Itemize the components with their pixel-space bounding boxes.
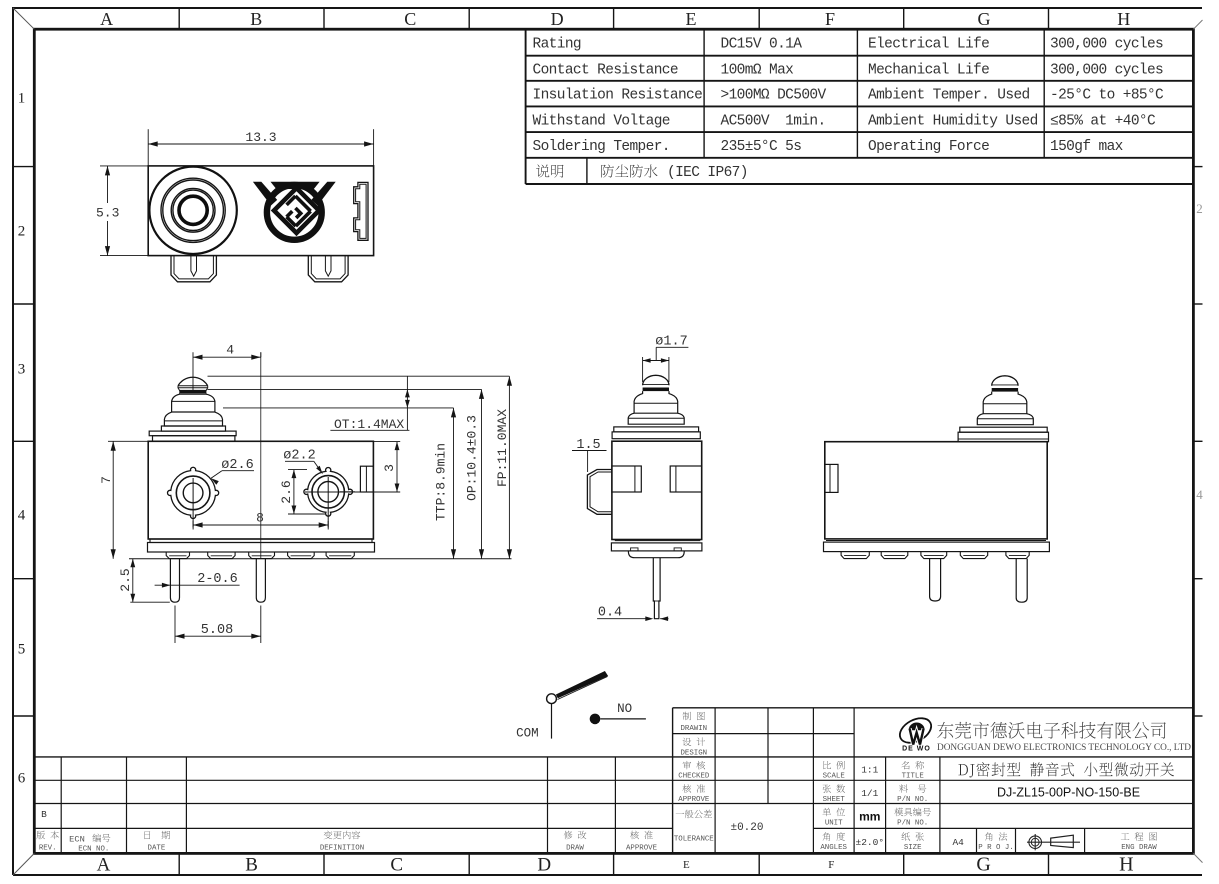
svg-text:2: 2 [1196, 201, 1203, 216]
svg-text:C: C [390, 855, 403, 876]
svg-text:APPROVE: APPROVE [678, 796, 710, 804]
svg-text:H: H [1119, 854, 1133, 876]
svg-text:2.5: 2.5 [118, 568, 133, 591]
svg-text:13.3: 13.3 [245, 130, 276, 145]
svg-text:SHEET: SHEET [823, 796, 846, 804]
svg-text:D: D [537, 855, 551, 876]
svg-text:D: D [551, 9, 564, 29]
svg-text:B: B [245, 855, 258, 876]
svg-text:A: A [100, 9, 113, 29]
svg-text:ECN: ECN [69, 835, 85, 845]
svg-text:TITLE: TITLE [902, 773, 925, 781]
svg-text:P/N NO.: P/N NO. [897, 819, 928, 827]
svg-text:±0.20: ±0.20 [730, 822, 763, 834]
svg-text:100mΩ Max: 100mΩ Max [721, 62, 795, 78]
svg-text:DATE: DATE [148, 845, 166, 853]
svg-text:ENG DRAW: ENG DRAW [1121, 844, 1157, 852]
svg-text:COM: COM [516, 726, 539, 740]
svg-text:DRAW: DRAW [566, 845, 584, 853]
svg-text:Rating: Rating [533, 37, 582, 53]
svg-text:≤85% at +40°C: ≤85% at +40°C [1050, 113, 1156, 129]
svg-text:P/N NO.: P/N NO. [897, 796, 928, 804]
svg-text:OP:10.4±0.3: OP:10.4±0.3 [464, 415, 479, 501]
svg-text:FP:11.0MAX: FP:11.0MAX [495, 409, 510, 487]
svg-text:DE WO: DE WO [902, 746, 931, 753]
svg-text:DESIGN: DESIGN [680, 749, 707, 757]
svg-text:A: A [97, 855, 111, 876]
svg-text:Soldering Temper.: Soldering Temper. [533, 139, 670, 155]
svg-text:B: B [250, 9, 262, 29]
svg-text:OT:1.4MAX: OT:1.4MAX [334, 417, 404, 432]
svg-text:E: E [683, 859, 690, 871]
svg-text:1/1: 1/1 [861, 788, 878, 799]
svg-text:5.08: 5.08 [201, 623, 233, 638]
svg-text:±2.0°: ±2.0° [856, 837, 885, 848]
svg-text:Ambient Humidity Used: Ambient Humidity Used [868, 113, 1038, 129]
svg-text:DC15V 0.1A: DC15V 0.1A [721, 37, 803, 53]
svg-text:-25°C to +85°C: -25°C to +85°C [1050, 88, 1164, 104]
svg-text:300,000 cycles: 300,000 cycles [1050, 37, 1163, 53]
svg-text:G: G [978, 9, 991, 29]
svg-text:(IEC IP67): (IEC IP67) [667, 165, 748, 181]
svg-text:5.3: 5.3 [96, 206, 119, 221]
svg-text:3: 3 [18, 362, 26, 378]
svg-text:5: 5 [18, 642, 26, 658]
svg-text:DJ-ZL15-00P-NO-150-BE: DJ-ZL15-00P-NO-150-BE [997, 786, 1140, 800]
svg-text:H: H [1117, 9, 1130, 29]
svg-text:F: F [828, 859, 834, 871]
svg-text:4: 4 [226, 343, 234, 358]
svg-text:A4: A4 [952, 837, 964, 848]
svg-text:TOLERANCE: TOLERANCE [674, 836, 714, 844]
svg-text:300,000 cycles: 300,000 cycles [1050, 62, 1163, 78]
svg-text:NO: NO [617, 702, 632, 716]
svg-text:APPROVE: APPROVE [626, 845, 658, 853]
svg-text:DRAWIN: DRAWIN [680, 725, 707, 733]
svg-text:TTP:8.9min: TTP:8.9min [434, 443, 449, 521]
svg-text:AC500V 1min.: AC500V 1min. [721, 113, 826, 129]
svg-text:>100MΩ DC500V: >100MΩ DC500V [721, 88, 827, 104]
svg-text:G: G [976, 854, 990, 876]
svg-text:1:1: 1:1 [861, 765, 878, 776]
svg-text:4: 4 [1196, 487, 1203, 502]
svg-text:P R O J.: P R O J. [978, 844, 1013, 852]
svg-text:8: 8 [256, 511, 264, 526]
svg-text:Electrical Life: Electrical Life [868, 37, 989, 53]
svg-text:ECN NO.: ECN NO. [78, 846, 109, 854]
svg-text:Withstand Voltage: Withstand Voltage [533, 113, 670, 129]
svg-text:150gf max: 150gf max [1050, 139, 1124, 155]
svg-text:Mechanical Life: Mechanical Life [868, 62, 989, 78]
svg-text:ANGLES: ANGLES [820, 844, 847, 852]
svg-text:DEFINITION: DEFINITION [320, 845, 364, 853]
svg-text:Ambient Temper. Used: Ambient Temper. Used [868, 88, 1030, 104]
svg-text:235±5°C 5s: 235±5°C 5s [721, 139, 802, 155]
svg-text:1: 1 [18, 91, 26, 107]
svg-text:UNIT: UNIT [825, 819, 843, 827]
svg-text:SCALE: SCALE [823, 773, 846, 781]
svg-text:Contact Resistance: Contact Resistance [533, 62, 678, 78]
svg-text:mm: mm [859, 810, 880, 824]
svg-text:B: B [41, 809, 47, 820]
svg-text:C: C [404, 9, 416, 29]
svg-text:DONGGUAN DEWO ELECTRONICS TECH: DONGGUAN DEWO ELECTRONICS TECHNOLOGY CO.… [937, 743, 1191, 753]
svg-text:CHECKED: CHECKED [678, 773, 710, 781]
svg-text:Operating Force: Operating Force [868, 139, 989, 155]
svg-text:E: E [686, 9, 697, 29]
svg-text:3: 3 [382, 464, 397, 472]
svg-text:7: 7 [99, 476, 114, 484]
svg-text:REV.: REV. [39, 845, 57, 853]
svg-text:Insulation Resistance: Insulation Resistance [533, 88, 703, 104]
svg-text:2.6: 2.6 [279, 480, 294, 503]
svg-text:6: 6 [18, 771, 26, 787]
svg-text:2: 2 [18, 224, 26, 240]
svg-text:2-0.6: 2-0.6 [197, 572, 238, 587]
svg-text:SIZE: SIZE [904, 844, 922, 852]
svg-text:4: 4 [18, 508, 26, 524]
svg-text:F: F [825, 9, 835, 29]
